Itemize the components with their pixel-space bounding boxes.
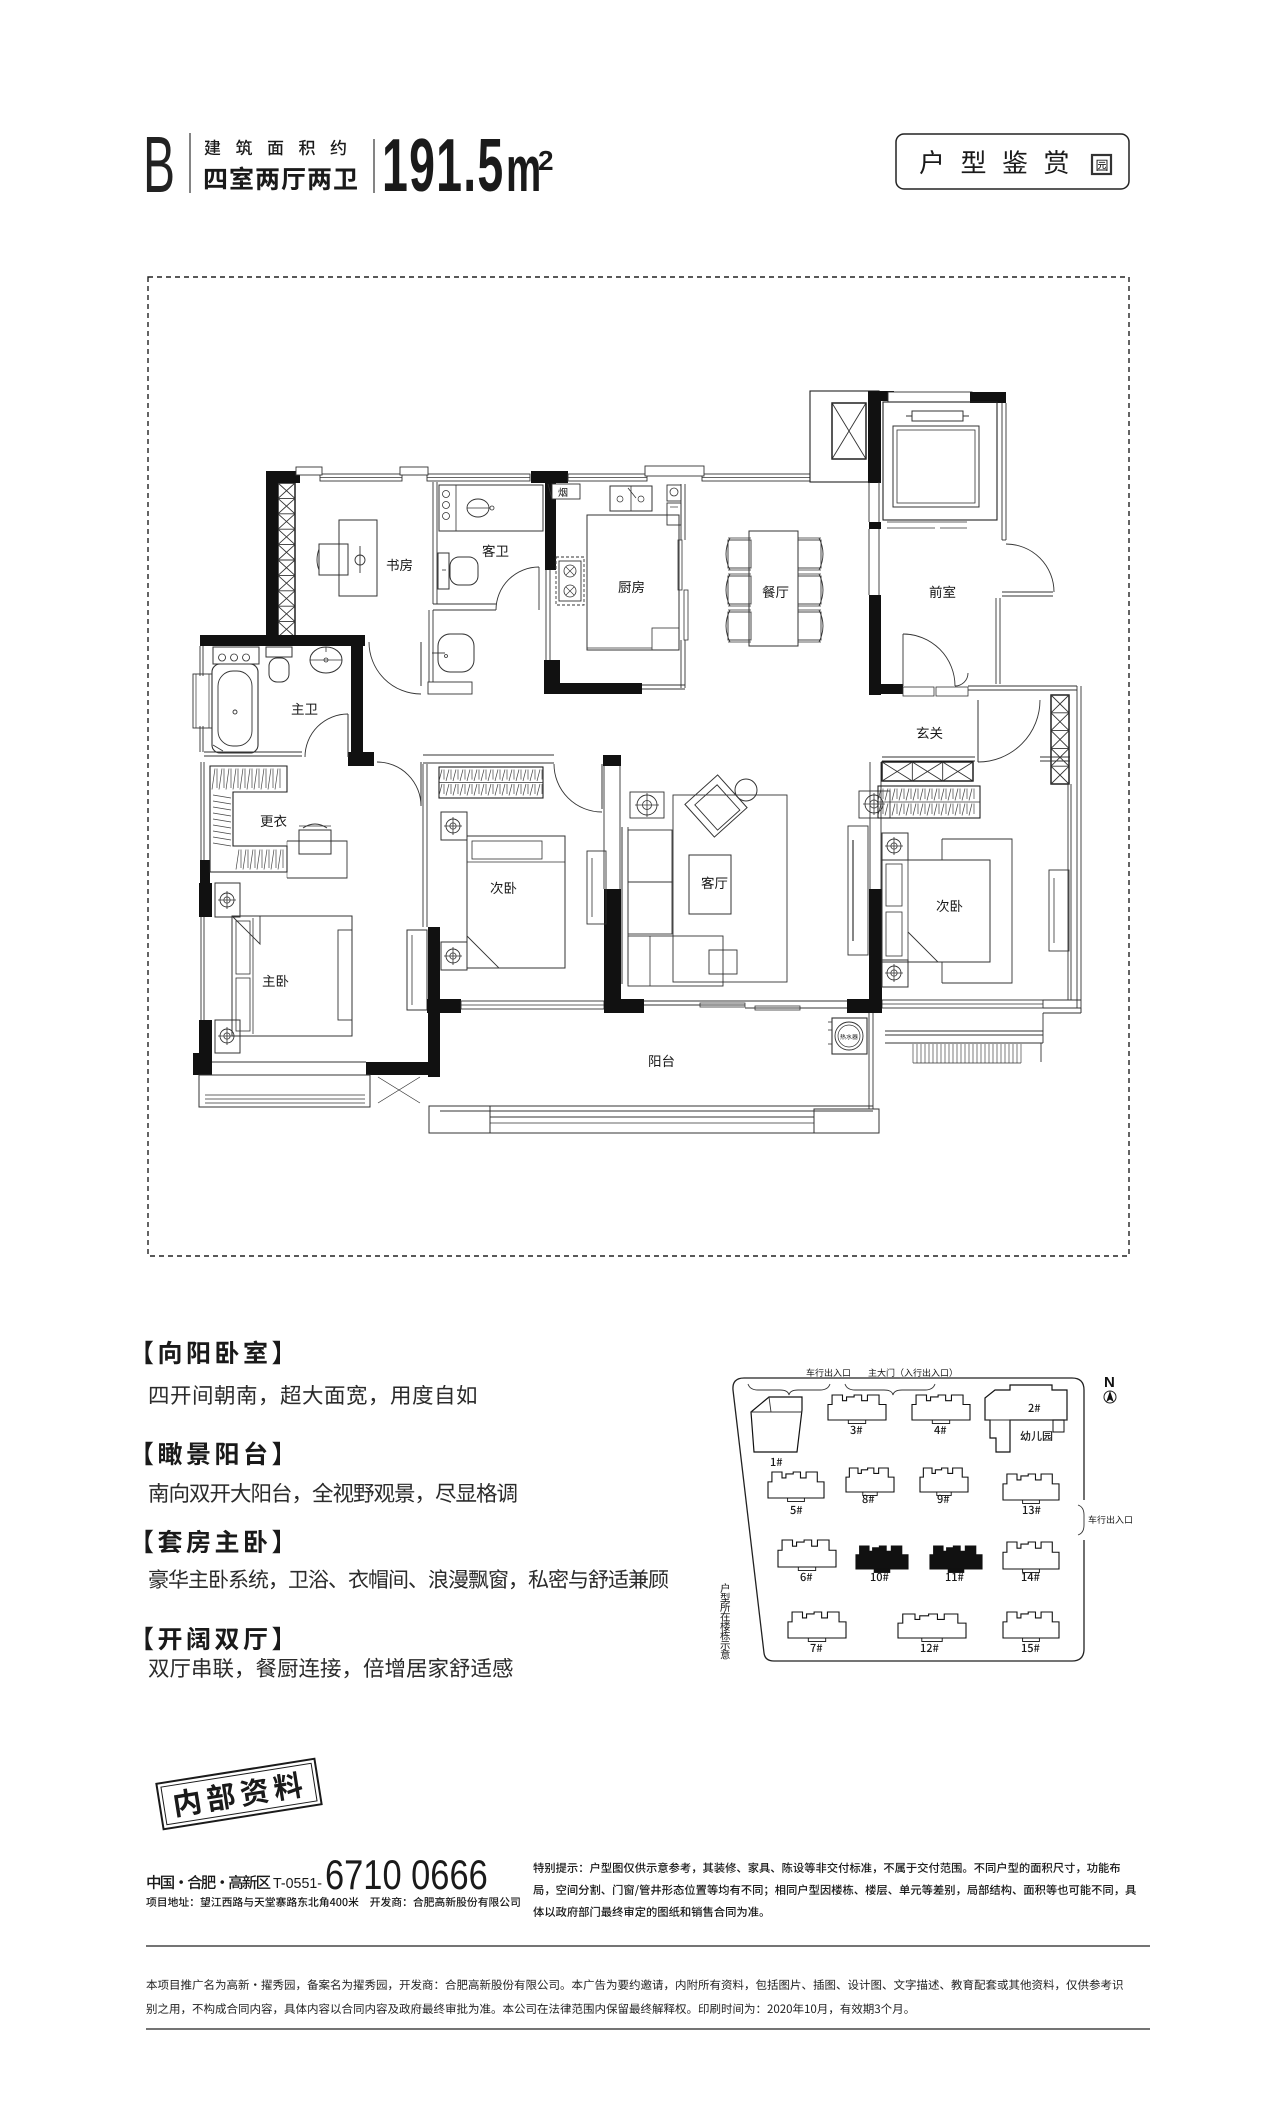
svg-text:B: B — [143, 119, 175, 209]
svg-text:191.5: 191.5 — [382, 125, 505, 208]
svg-text:2: 2 — [538, 145, 554, 176]
svg-text:N: N — [1104, 1374, 1115, 1391]
svg-text:T-0551-: T-0551- — [273, 1876, 322, 1892]
svg-text:m: m — [506, 135, 541, 206]
svg-text:6710 0666: 6710 0666 — [325, 1852, 488, 1899]
